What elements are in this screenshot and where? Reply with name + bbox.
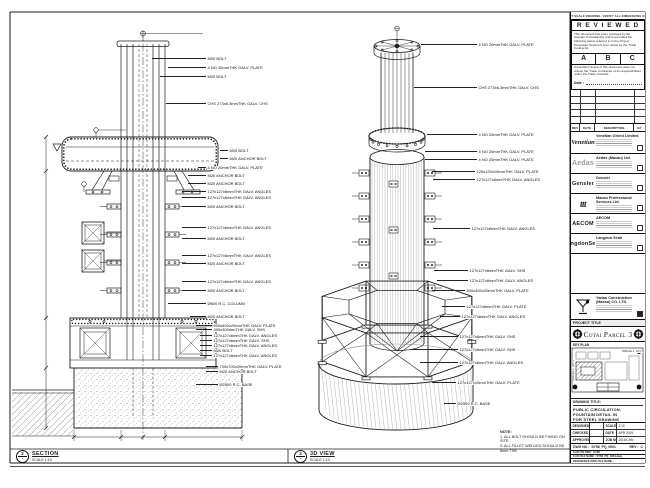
callout-label: 127x127x6mmTHK GALV. ANGLES bbox=[200, 334, 278, 338]
callout-label: M20 ANCHOR BOLT bbox=[182, 237, 245, 241]
callout-label: M20 BOLT bbox=[200, 349, 233, 353]
project-title-label: PROJECT TITLE bbox=[571, 320, 645, 327]
dwg-number-row: DWG NO : SY58_PQ_0001 REV : C bbox=[571, 444, 645, 451]
callout-label: 127x127x6mmTHK GALV. ANGLES bbox=[182, 190, 272, 194]
consultant-list: VenetianVenetian Orient LimitedAedasAeda… bbox=[571, 132, 645, 294]
drawing-title-label: DRAWING TITLE: bbox=[573, 400, 643, 406]
callout-label: M20 BOLT bbox=[152, 57, 227, 61]
info-value: - bbox=[590, 430, 604, 436]
date-row: Date : bbox=[572, 79, 644, 85]
consultant-box: LangdonSeahLangdon Seah bbox=[571, 234, 645, 254]
consultant-address bbox=[596, 181, 632, 188]
status-a: A bbox=[572, 54, 596, 64]
callout-label: M20 ANCHOR BOLT bbox=[182, 289, 245, 293]
info-row: DESIGNEDSCALE1:10 bbox=[571, 423, 645, 430]
callout-label: M20 ANCHOR BOLT bbox=[190, 315, 245, 319]
consultant-box: AECOMAECOM bbox=[571, 214, 645, 234]
consultant-checkbox bbox=[637, 185, 643, 191]
note-item: 2. ALL FILLET WELDED SHOULD BE 6mm THK. bbox=[500, 444, 570, 453]
info-row: APPROVED-JOB NO.2015/CHN bbox=[571, 437, 645, 443]
dwg-number: SY58_PQ_0001 bbox=[591, 445, 616, 449]
callout-label: 4 NO 20mmTHK GALV. PLATE bbox=[425, 150, 534, 154]
view-title: SECTION bbox=[32, 451, 59, 457]
info-label: CHECKED bbox=[571, 430, 590, 436]
consultant-checkbox bbox=[637, 145, 643, 151]
consultant-name: Macau Professional Services Ltd. bbox=[596, 196, 644, 204]
callout-label: 4 NO 20mmTHK GALV. PLATE bbox=[427, 133, 534, 137]
crest-icon bbox=[633, 328, 644, 340]
reference-row: REFERENCE DWG FILE NAME : bbox=[571, 459, 645, 463]
callout-label: 127x127x6mmTHK GALV. ANGLES bbox=[437, 279, 534, 283]
callout-label: 4 NO 20mmTHK GALV. PLATE bbox=[421, 43, 534, 47]
consultant-name: Langdon Seah bbox=[596, 236, 644, 240]
callout-label: CHS 273x6.3mmTHK GALV. CHS bbox=[414, 86, 539, 90]
callout-label: M20 ANCHOR BOLT bbox=[220, 157, 267, 161]
reviewed-stamp: R E V I E W E D This document has been r… bbox=[571, 20, 645, 90]
callout-label: 120x120x10mmTHK GALV. PLATE bbox=[432, 170, 539, 174]
contractor-box: Yadao Construction (Macau) CO. LTD. bbox=[571, 294, 645, 320]
consultant-name: Venetian Orient Limited bbox=[596, 134, 644, 138]
status-c: C bbox=[621, 54, 644, 64]
revision-rows bbox=[571, 90, 645, 124]
info-value: 2015/CHN bbox=[617, 437, 643, 443]
consultant-logo bbox=[571, 254, 595, 293]
callout-label: 127x127x6mmTHK GALV. ANGLES bbox=[182, 280, 272, 284]
callout-label: CHS 273x6.3mmTHK GALV. CHS bbox=[166, 102, 268, 106]
bubble-sheet: - bbox=[18, 457, 27, 462]
drawing-sheet: M20 BOLT4 NO 20mmTHK GALV. PLATEM20 BOLT… bbox=[0, 0, 650, 488]
info-value: APR 2015 bbox=[617, 430, 643, 436]
consultant-address bbox=[596, 205, 632, 212]
callout-label: 127x127x6mmTHK GALV. ANGLES bbox=[182, 226, 272, 230]
key-plan-label: PARCEL 1, LOT 2 bbox=[622, 350, 643, 353]
project-title: Cotai Parcel 3 bbox=[583, 330, 633, 339]
callout-label: 127x127x6mmTHK GALV. SHS bbox=[434, 269, 526, 273]
info-row: CHECKED-DATEAPR 2015 bbox=[571, 430, 645, 437]
glass-logo-icon bbox=[575, 298, 591, 316]
status-b: B bbox=[596, 54, 620, 64]
title-block: DO NOT SCALE DRAWING. VERIFY ALL DIMENSI… bbox=[570, 12, 645, 463]
callout-label: 4 NO 20mmTHK GALV. PLATE bbox=[198, 166, 263, 170]
consultant-logo: LangdonSeah bbox=[571, 234, 595, 253]
contractor-logo bbox=[571, 294, 595, 319]
callout-label: Ø2500 R.C. BASE bbox=[444, 402, 491, 406]
callout-label: Ø2500 R.C. BASE bbox=[196, 383, 253, 387]
drawing-title-line: FOR STEEL DRAWING bbox=[573, 417, 643, 422]
consultant-box bbox=[571, 254, 645, 294]
callout-label: 127x127x6mmTHK GALV. SHS bbox=[200, 339, 270, 343]
crest-icon bbox=[572, 328, 583, 340]
section-view-tag: 2 - SECTION SCALE 1:10 bbox=[16, 450, 59, 463]
callout-label: M20 ANCHOR BOLT bbox=[188, 174, 245, 178]
consultant-name: AECOM bbox=[596, 216, 644, 220]
contractor-address bbox=[596, 305, 632, 312]
consultant-box: tttMacau Professional Services Ltd. bbox=[571, 194, 645, 214]
callout-label: 127x127x6mmTHK GALV. ANGLES bbox=[182, 196, 272, 200]
consultant-box: VenetianVenetian Orient Limited bbox=[571, 132, 645, 154]
reviewed-paragraph: Consultant review of this document does … bbox=[572, 65, 644, 79]
callout-label: 4 NO 20mmTHK GALV. PLATE bbox=[425, 158, 534, 162]
callout-label: 127x127x6mmTHK GALV. ANGLES bbox=[433, 178, 541, 182]
callout-label: M20 BOLT bbox=[160, 75, 227, 79]
info-label: DATE bbox=[604, 430, 617, 436]
rev-value: C bbox=[641, 445, 643, 449]
status-options: A B C bbox=[572, 53, 644, 65]
info-value bbox=[590, 423, 604, 429]
consultant-name: Aedas (Macau) Ltd. bbox=[596, 156, 644, 160]
view-scale: SCALE 1:10 bbox=[310, 458, 335, 462]
callout-label: 127x127x6mmTHK GALV. ANGLES bbox=[420, 361, 524, 365]
consultant-address bbox=[596, 139, 632, 146]
consultant-box: GenslerGensler bbox=[571, 174, 645, 194]
consultant-logo: Venetian bbox=[571, 132, 595, 153]
consultant-logo: ttt bbox=[571, 194, 595, 213]
notes-block: NOTE: 1. ALL BOLT SHOULD BE FIXING ON SI… bbox=[500, 430, 570, 454]
callout-label: 127x127x6mmTHK GALV. ANGLES bbox=[200, 354, 278, 358]
callout-label: M20 ANCHOR BOLT bbox=[182, 205, 245, 209]
consultant-box: AedasAedas (Macau) Ltd. bbox=[571, 154, 645, 174]
callout-label: 300x300mmTHK GALV. SHS bbox=[196, 328, 266, 332]
dwg-label: DWG NO : bbox=[573, 445, 589, 449]
info-value: - bbox=[590, 437, 604, 443]
detail-bubble: 2 - bbox=[16, 450, 29, 463]
callout-label: M20 ANCHOR BOLT bbox=[206, 370, 257, 374]
consultant-logo: Gensler bbox=[571, 174, 595, 193]
callout-label: 400x400x20mmTHK GALV. PLATE bbox=[432, 289, 529, 293]
callout-label: 127x127x6mmTHK GALV. ANGLES bbox=[200, 344, 278, 348]
project-banner: Cotai Parcel 3 bbox=[571, 327, 645, 342]
date-label: Date : bbox=[574, 81, 584, 85]
key-plan: KEY PLAN PARCEL 1, LOT 2 PARCEL 1, LOT 1 bbox=[571, 342, 645, 399]
callout-label: 127x127x6mmTHK GALV. SHS bbox=[410, 348, 516, 352]
info-label: SCALE bbox=[604, 423, 617, 429]
consultant-checkbox bbox=[637, 165, 643, 171]
view-scale: SCALE 1:10 bbox=[32, 458, 59, 462]
callout-label: 700x700x20mmTHK GALV. PLATE bbox=[206, 365, 282, 369]
drawing-title-box: DRAWING TITLE: PUBLIC CIRCULATION, FOUNT… bbox=[571, 399, 645, 423]
3d-view-tag: 3 - 3D VIEW SCALE 1:10 bbox=[294, 450, 335, 463]
consultant-logo: AECOM bbox=[571, 214, 595, 233]
callout-label: 127x127x6mmTHK GALV. ANGLES bbox=[440, 315, 526, 319]
callout-label: 127x127x6mmTHK GALV. ANGLES bbox=[182, 254, 272, 258]
revision-header: REV DATE DESCRIPTION BY bbox=[571, 124, 645, 132]
rev-col: REV bbox=[571, 124, 580, 131]
callout-label: M20 ANCHOR BOLT bbox=[182, 262, 245, 266]
do-not-scale-note: DO NOT SCALE DRAWING. VERIFY ALL DIMENSI… bbox=[571, 12, 645, 20]
consultant-name: Gensler bbox=[596, 176, 644, 180]
consultant-logo: Aedas bbox=[571, 154, 595, 173]
callout-label: M20 BOLT bbox=[220, 149, 249, 153]
callout-label: 4 NO 20mmTHK GALV. PLATE bbox=[168, 66, 263, 70]
consultant-checkbox bbox=[637, 245, 643, 251]
date-line bbox=[586, 80, 642, 85]
contractor-name: Yadao Construction (Macau) CO. LTD. bbox=[596, 296, 644, 304]
consultant-checkbox bbox=[637, 225, 643, 231]
note-item: 1. ALL BOLT SHOULD BE FIXING ON SITE. bbox=[500, 435, 570, 444]
rev-label: REV : bbox=[630, 445, 639, 449]
callout-label: 127x127x10mmTHK GALV. PLATE bbox=[432, 381, 520, 385]
callout-label: 127x127x6mmTHK GALV. SHS bbox=[420, 335, 516, 339]
reviewed-paragraph: This document has been reviewed by the r… bbox=[572, 31, 644, 53]
key-plan-label: PARCEL 1, LOT 1 bbox=[572, 360, 575, 381]
callout-label: Ø600 R.C. COLUMN bbox=[168, 302, 245, 306]
info-label: DESIGNED bbox=[571, 423, 590, 429]
info-value: 1:10 bbox=[617, 423, 643, 429]
by-col: BY bbox=[634, 124, 645, 131]
consultant-address bbox=[596, 161, 632, 168]
info-table: DESIGNEDSCALE1:10CHECKED-DATEAPR 2015APP… bbox=[571, 423, 645, 444]
date-col: DATE bbox=[580, 124, 595, 131]
key-plan-title: KEY PLAN bbox=[573, 343, 589, 347]
callout-label: 127x127x6mmTHK GALV. ANGLES bbox=[433, 227, 536, 231]
info-label: APPROVED bbox=[571, 437, 590, 443]
consultant-address bbox=[596, 241, 632, 248]
description-col: DESCRIPTION bbox=[595, 124, 634, 131]
view-title: 3D VIEW bbox=[310, 451, 335, 457]
detail-bubble: 3 - bbox=[294, 450, 307, 463]
consultant-checkbox bbox=[637, 205, 643, 211]
callout-label: M20 ANCHOR BOLT bbox=[188, 182, 245, 186]
callout-label: 127x127x6mmTHK GALV. PLATE bbox=[442, 305, 527, 309]
contractor-checkbox bbox=[637, 311, 643, 317]
consultant-address bbox=[596, 221, 632, 228]
info-label: JOB NO. bbox=[604, 437, 617, 443]
reviewed-title: R E V I E W E D bbox=[572, 21, 644, 31]
bubble-sheet: - bbox=[296, 457, 305, 462]
cad-linework bbox=[0, 0, 650, 488]
